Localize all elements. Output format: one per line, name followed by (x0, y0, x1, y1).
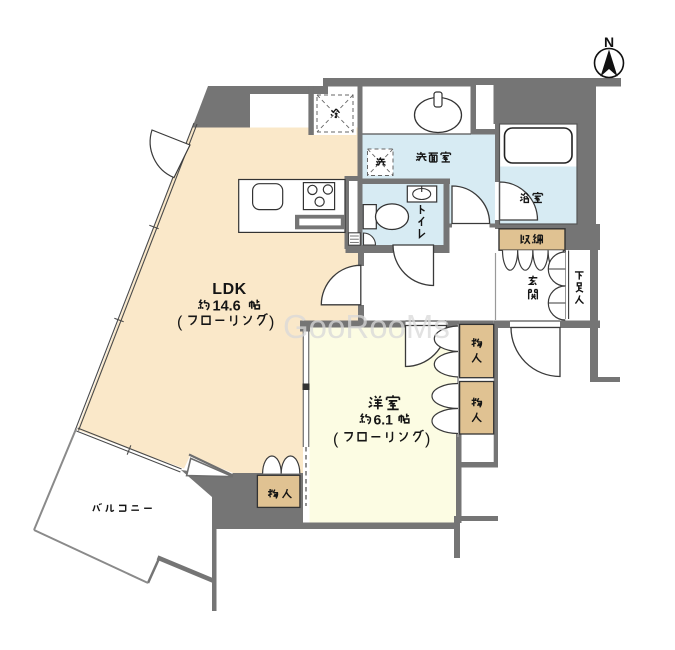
svg-text:14.6: 14.6 (213, 299, 241, 315)
svg-text:): ) (269, 314, 274, 331)
svg-text:(: ( (177, 314, 183, 331)
svg-text:N: N (604, 34, 614, 50)
svg-text:6.1: 6.1 (374, 412, 394, 428)
svg-text:GooRooMs: GooRooMs (283, 308, 450, 345)
svg-text:): ) (425, 431, 430, 448)
svg-text:(: ( (333, 431, 339, 448)
svg-text:LDK: LDK (212, 281, 246, 298)
